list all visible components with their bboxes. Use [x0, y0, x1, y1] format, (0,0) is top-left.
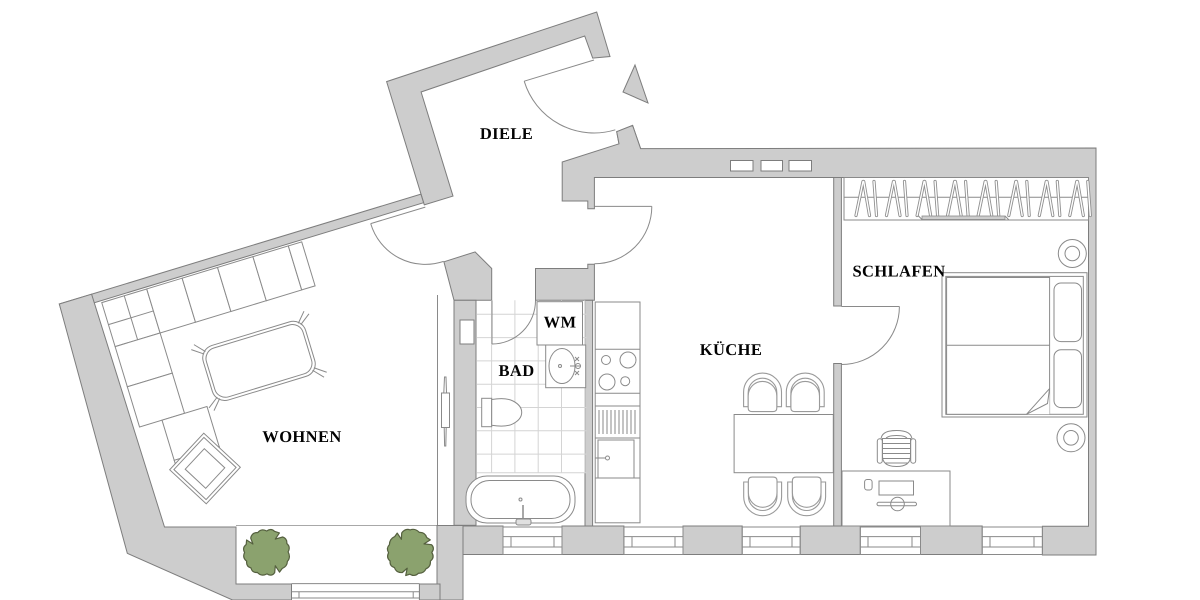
svg-text:SCHLAFEN: SCHLAFEN	[852, 262, 945, 281]
svg-text:KÜCHE: KÜCHE	[700, 340, 763, 359]
svg-text:WM: WM	[544, 313, 577, 332]
svg-text:DIELE: DIELE	[480, 124, 533, 143]
svg-text:BAD: BAD	[498, 361, 534, 380]
svg-text:WOHNEN: WOHNEN	[262, 427, 341, 446]
